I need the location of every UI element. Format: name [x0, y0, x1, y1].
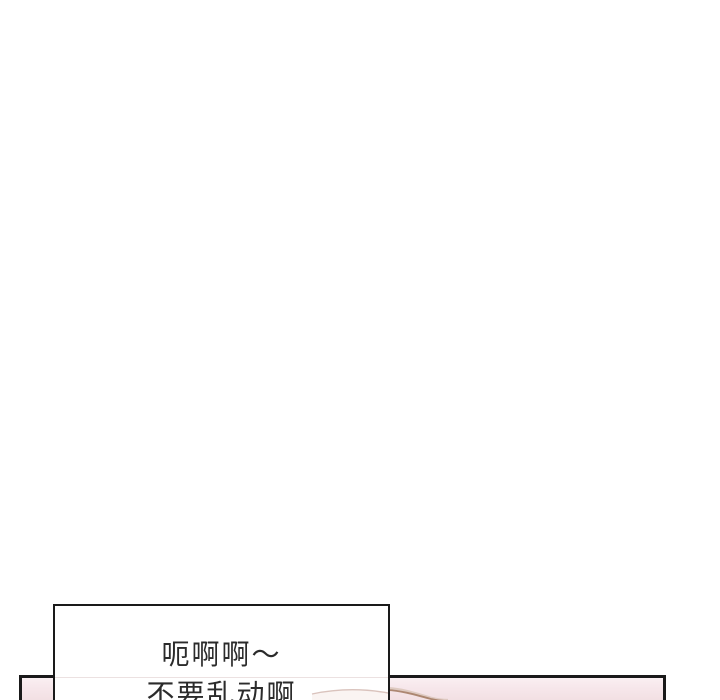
comic-page: 呃啊啊～ 不要乱动啊 [0, 0, 720, 700]
bubble-text-line-1: 呃啊啊～ [55, 639, 388, 670]
panel-skin-outline-art [386, 687, 448, 700]
bubble-text-line-2: 不要乱动啊 [55, 679, 388, 700]
speech-bubble: 呃啊啊～ 不要乱动啊 [53, 604, 390, 700]
panel-border-ghost-line [55, 677, 388, 678]
